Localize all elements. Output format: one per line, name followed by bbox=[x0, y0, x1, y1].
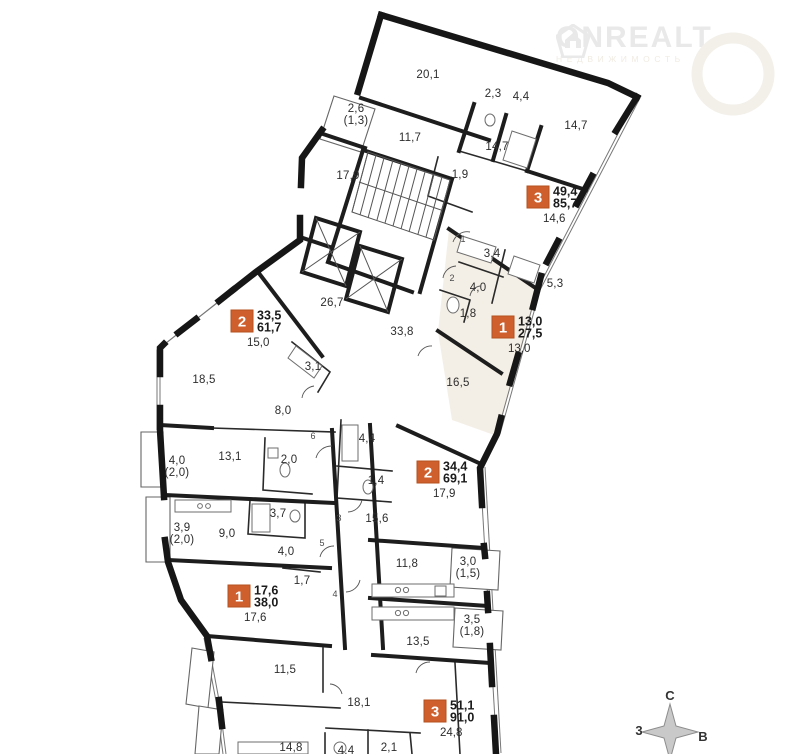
extra-area-value: 14,6 bbox=[543, 213, 565, 225]
room-area-sublabel: (2,0) bbox=[165, 467, 190, 479]
room-area-label: 8,0 bbox=[275, 405, 292, 417]
compass-north-label: С bbox=[665, 688, 675, 703]
watermark-circle bbox=[697, 38, 769, 110]
apartment-badge: 234,469,117,9 bbox=[417, 460, 467, 501]
room-area-label: 14,7 bbox=[564, 120, 587, 132]
room-area-label: 1,8 bbox=[460, 308, 477, 320]
room-area-label: 4,0 bbox=[470, 282, 487, 294]
room-area-label: 14,8 bbox=[279, 742, 302, 754]
compass-west-label: 3 bbox=[635, 723, 642, 738]
room-area-label: 1,4 bbox=[368, 475, 385, 487]
room-area-label: 1,9 bbox=[452, 169, 469, 181]
total-area-value: 27,5 bbox=[518, 327, 542, 341]
badge-apartment-rooms-number: 2 bbox=[424, 465, 432, 482]
room-area-label: 2,0 bbox=[281, 454, 298, 466]
badge-apartment-rooms-number: 3 bbox=[534, 190, 542, 207]
room-area-label: 3,7 bbox=[270, 508, 287, 520]
room-area-label: 13,5 bbox=[406, 636, 429, 648]
room-area-label: 4,4 bbox=[338, 745, 355, 754]
badge-apartment-rooms-number: 1 bbox=[235, 589, 243, 606]
total-area-value: 85,7 bbox=[553, 197, 577, 211]
apartment-badge: 349,485,714,6 bbox=[527, 185, 577, 226]
room-area-label: 3,5 bbox=[464, 614, 481, 626]
bathroom-kitchen-fixtures bbox=[175, 114, 540, 754]
room-area-label: 14,7 bbox=[485, 141, 508, 153]
room-area-label: 2,3 bbox=[485, 88, 502, 100]
apartment-badge: 351,191,024,8 bbox=[424, 699, 474, 740]
room-area-sublabel: (1,3) bbox=[344, 115, 369, 127]
room-area-label: 33,8 bbox=[390, 326, 413, 338]
room-area-label: 17,9 bbox=[336, 170, 359, 182]
room-area-label: 13,1 bbox=[218, 451, 241, 463]
total-area-value: 69,1 bbox=[443, 472, 467, 486]
apartment-badge: 233,561,715,0 bbox=[231, 309, 281, 350]
badge-apartment-rooms-number: 2 bbox=[238, 314, 246, 331]
compass-star bbox=[642, 704, 698, 754]
room-area-label: 20,1 bbox=[416, 69, 439, 81]
door-number: 4 bbox=[332, 589, 337, 599]
room-area-label: 1,7 bbox=[294, 575, 311, 587]
room-area-label: 11,5 bbox=[274, 664, 296, 676]
extra-area-value: 13,0 bbox=[508, 343, 530, 355]
extra-area-value: 17,6 bbox=[244, 612, 266, 624]
interior-walls bbox=[160, 98, 586, 663]
extra-area-value: 17,9 bbox=[433, 488, 455, 500]
elevator-shafts bbox=[302, 218, 402, 312]
floor-plan-page: ONREALT НЕДВИЖИМОСТЬ bbox=[0, 0, 802, 754]
room-area-label: 16,5 bbox=[446, 377, 469, 389]
room-area-label: 2,6 bbox=[348, 103, 365, 115]
badge-apartment-rooms-number: 3 bbox=[431, 704, 439, 721]
room-area-label: 3,1 bbox=[305, 361, 322, 373]
compass-east-label: В bbox=[698, 729, 707, 744]
extra-area-value: 24,8 bbox=[440, 727, 462, 739]
room-area-label: 26,7 bbox=[320, 297, 343, 309]
room-area-sublabel: (1,5) bbox=[456, 568, 481, 580]
apartment-badge: 117,638,017,6 bbox=[228, 584, 278, 625]
room-area-label: 18,5 bbox=[192, 374, 215, 386]
total-area-value: 61,7 bbox=[257, 321, 281, 335]
room-area-label: 5,3 bbox=[547, 278, 564, 290]
compass-rose: СВ3 bbox=[635, 688, 707, 754]
room-area-label: 4,4 bbox=[513, 91, 530, 103]
room-area-sublabel: (2,0) bbox=[170, 534, 195, 546]
door-number: 2 bbox=[449, 273, 454, 283]
total-area-value: 91,0 bbox=[450, 711, 474, 725]
door-number: 5 bbox=[319, 538, 324, 548]
total-area-value: 38,0 bbox=[254, 596, 278, 610]
room-area-label: 4,0 bbox=[169, 455, 186, 467]
floor-plan-svg: 20,12,34,414,72,6(1,3)11,714,717,91,93,4… bbox=[0, 0, 802, 754]
room-area-label: 4,0 bbox=[278, 546, 295, 558]
room-area-label: 11,8 bbox=[396, 558, 418, 570]
room-area-label: 18,1 bbox=[347, 697, 370, 709]
room-area-label: 2,1 bbox=[381, 742, 398, 754]
room-area-label: 9,0 bbox=[219, 528, 236, 540]
room-area-label: 15,6 bbox=[365, 513, 388, 525]
extra-area-value: 15,0 bbox=[247, 337, 269, 349]
room-area-sublabel: (1,8) bbox=[460, 626, 485, 638]
room-area-label: 4,4 bbox=[359, 433, 376, 445]
room-area-label: 3,0 bbox=[460, 556, 477, 568]
room-area-label: 3,9 bbox=[174, 522, 191, 534]
room-area-label: 3,4 bbox=[484, 248, 501, 260]
door-number: 6 bbox=[310, 431, 315, 441]
badge-apartment-rooms-number: 1 bbox=[499, 320, 507, 337]
room-area-label: 11,7 bbox=[399, 132, 421, 144]
door-number: 1 bbox=[460, 234, 465, 244]
door-number: 3 bbox=[336, 513, 341, 523]
room-labels-layer: 20,12,34,414,72,6(1,3)11,714,717,91,93,4… bbox=[165, 69, 588, 754]
